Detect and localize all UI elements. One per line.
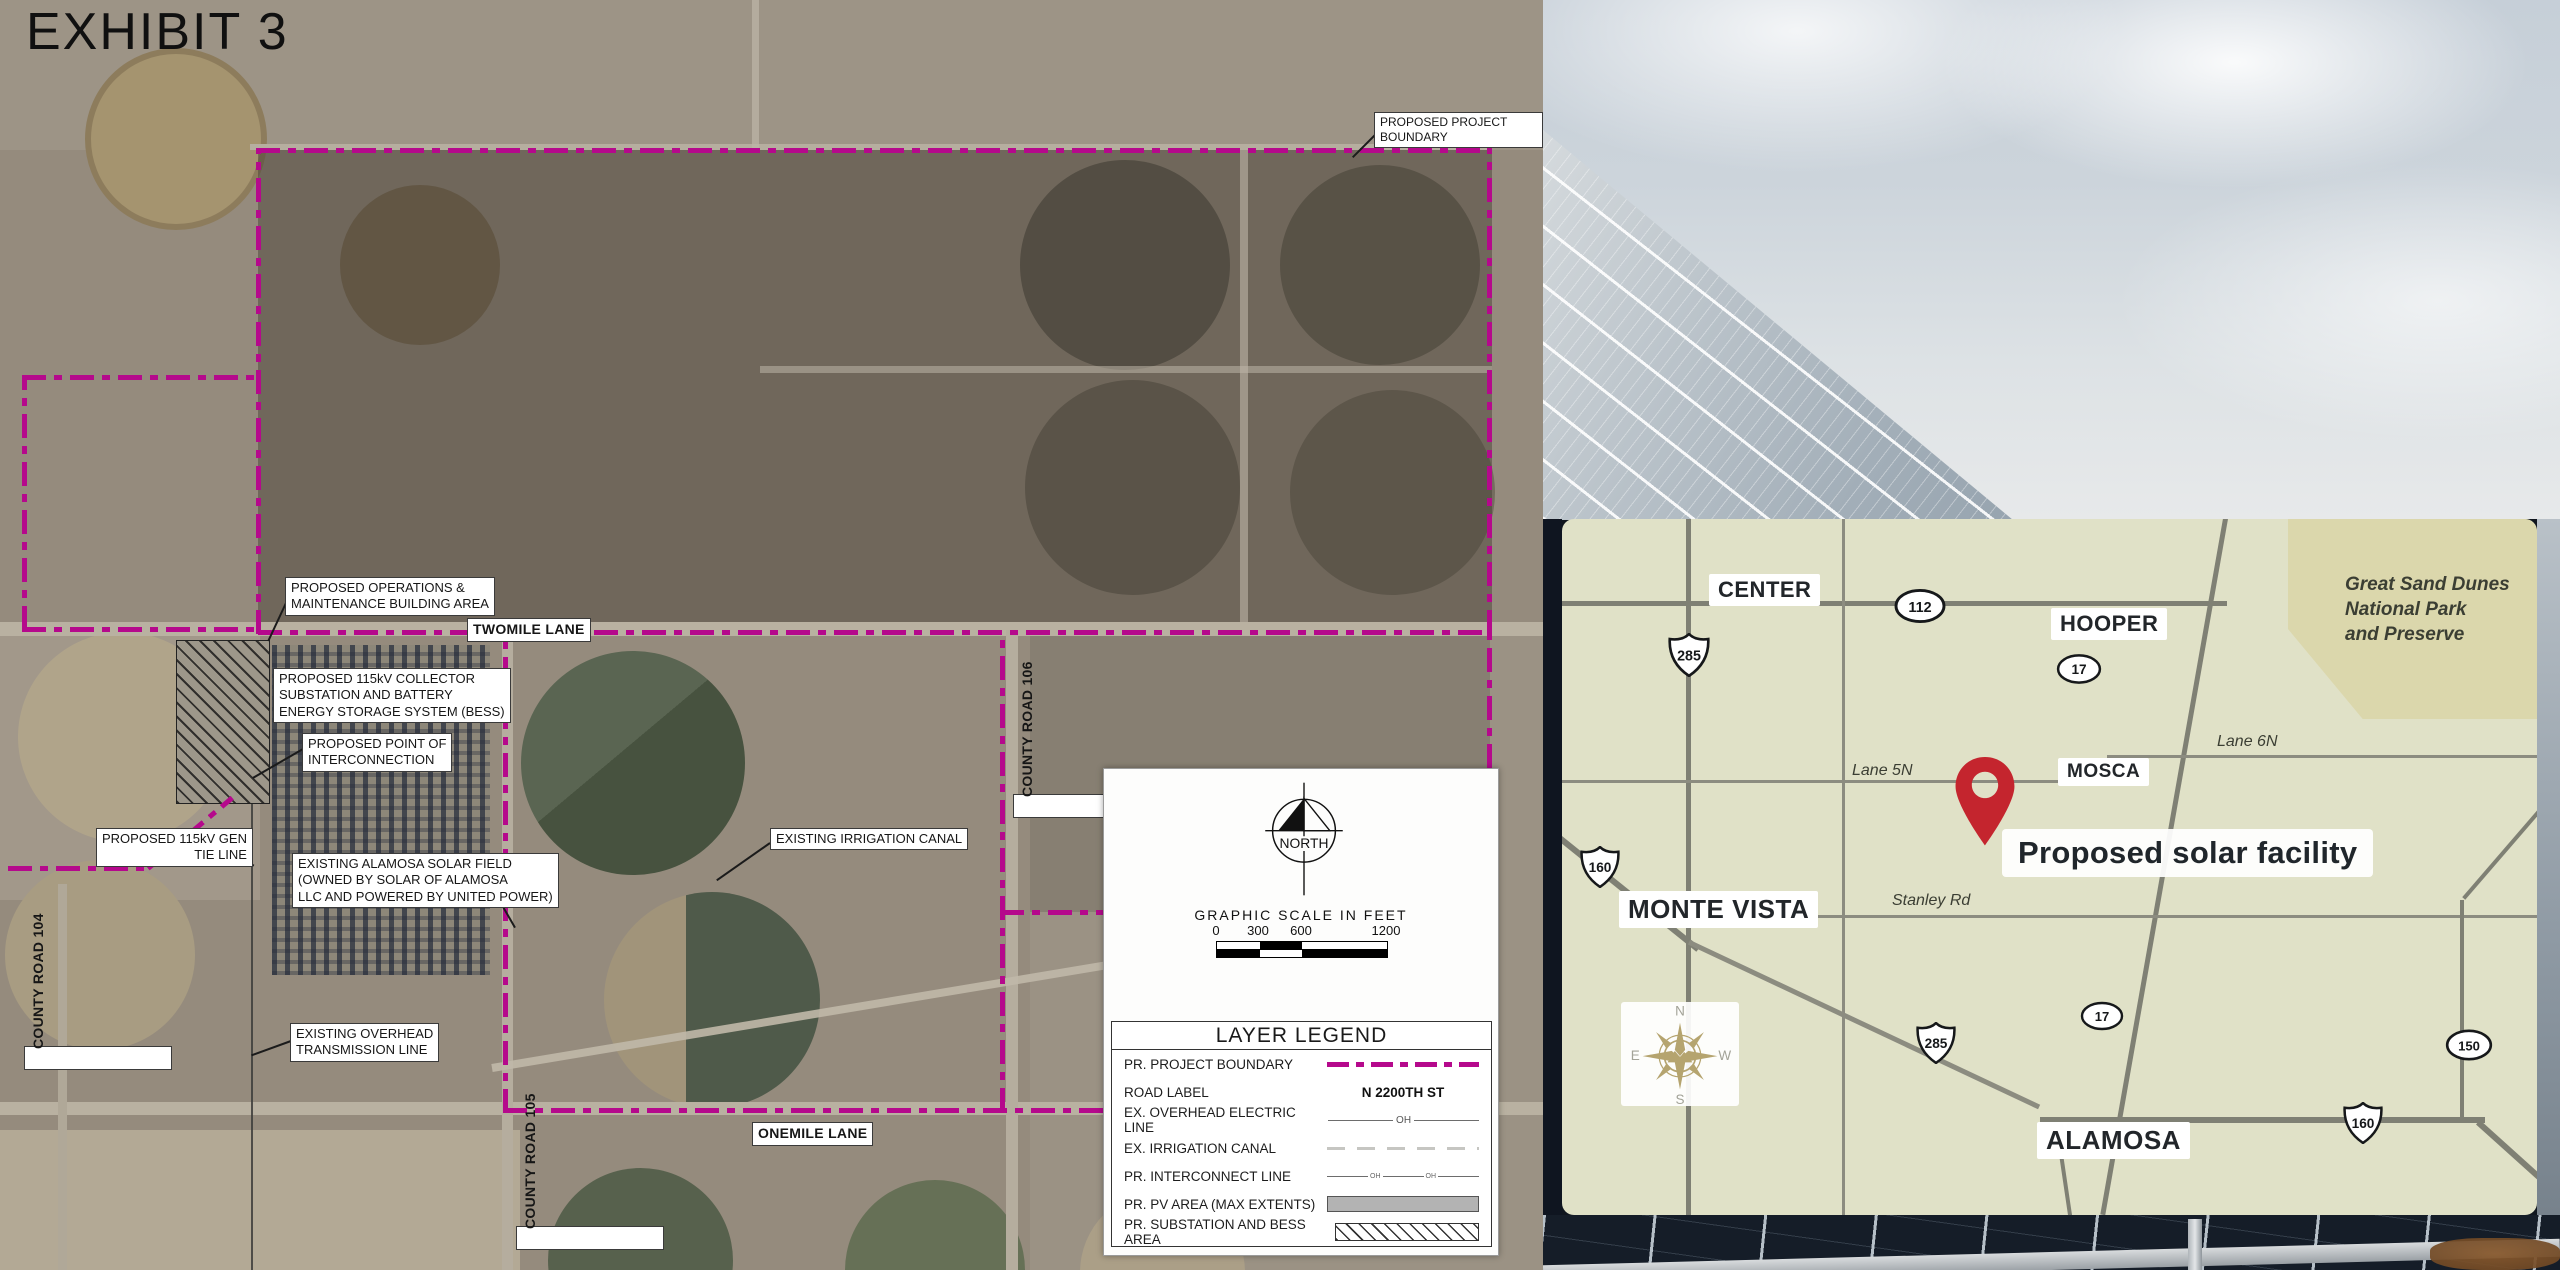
shield-number: 150: [2458, 1038, 2480, 1053]
road-label-cr105: COUNTY ROAD 105: [516, 1226, 664, 1250]
road-label-cr104: COUNTY ROAD 104: [24, 1046, 172, 1070]
oh-tag: OH: [1393, 1115, 1414, 1126]
road-label-twomile: TWOMILE LANE: [467, 618, 591, 642]
county-road-106: [1006, 630, 1018, 1270]
shield-number: 17: [2095, 1009, 2109, 1024]
callout-canal: EXISTING IRRIGATION CANAL: [770, 828, 968, 850]
legend-row: EX. IRRIGATION CANAL: [1112, 1134, 1491, 1162]
route-17-shield: 17: [2056, 651, 2102, 687]
legend-row: PR. PV AREA (MAX EXTENTS): [1112, 1190, 1491, 1218]
legend-label: PR. PROJECT BOUNDARY: [1124, 1057, 1293, 1072]
layer-legend: LAYER LEGEND PR. PROJECT BOUNDARY ROAD L…: [1111, 1021, 1492, 1247]
route-150-shield: 150: [2445, 1027, 2493, 1063]
boundary-segment: [22, 375, 258, 380]
road-top-vertical: [752, 0, 759, 150]
county-road-104: [58, 884, 67, 1270]
exhibit-3-canvas: EXHIBIT 3 PROPOSED PROJECT BOUNDARY PROP…: [0, 0, 2560, 1270]
road-lane6n: [2107, 755, 2537, 758]
boundary-segment: [22, 627, 258, 632]
compass-rose-icon: N S E W: [1621, 1002, 1739, 1106]
panel-strip-right: [2537, 519, 2560, 1215]
location-map: Great Sand Dunes National Park and Prese…: [1562, 519, 2537, 1215]
crop-circle: [604, 892, 820, 1108]
road-name-lane6n: Lane 6N: [2217, 733, 2278, 751]
panel-post: [2188, 1219, 2202, 1270]
legend-label: EX. OVERHEAD ELECTRIC LINE: [1124, 1105, 1328, 1135]
substation-swatch: [1335, 1223, 1479, 1241]
scale-tick: 300: [1247, 923, 1269, 938]
town-monte-vista: MONTE VISTA: [1619, 891, 1818, 928]
aerial-map: EXHIBIT 3 PROPOSED PROJECT BOUNDARY PROP…: [0, 0, 1543, 1270]
legend-row: PR. INTERCONNECT LINE OH OH: [1112, 1162, 1491, 1190]
crop-circle: [845, 1180, 1025, 1270]
road-lane5n: [1562, 780, 2110, 783]
road-minor-vertical: [1842, 519, 1845, 1215]
crop-circle: [548, 1168, 733, 1270]
layer-legend-title: LAYER LEGEND: [1112, 1022, 1491, 1050]
boundary-segment: [1000, 634, 1005, 1112]
leader-line: [251, 1040, 291, 1056]
shield-number: 112: [1908, 600, 1931, 616]
scale-ticks: 0 300 600 1200: [1216, 923, 1386, 937]
us-285-shield: 285: [1665, 633, 1713, 677]
us-160-shield: 160: [1577, 846, 1623, 888]
compass-w: W: [1718, 1048, 1731, 1063]
town-hooper: HOOPER: [2051, 608, 2167, 640]
road-285-southeast: [1688, 940, 2040, 1109]
crop-circle: [85, 48, 267, 230]
legend-panel: NORTH GRAPHIC SCALE IN FEET 0 300 600 12…: [1103, 768, 1499, 1256]
road-label-cr105-text: COUNTY ROAD 105: [522, 1093, 540, 1229]
pv-area-swatch: [1327, 1196, 1479, 1212]
compass-s: S: [1675, 1092, 1684, 1106]
road-name-stanley: Stanley Rd: [1892, 892, 1970, 910]
road-160-curve: [2476, 1120, 2537, 1185]
ground-patch: [2430, 1238, 2560, 1270]
crop-circle: [521, 651, 745, 875]
boundary-segment: [22, 375, 27, 630]
callout-collector: PROPOSED 115kV COLLECTOR SUBSTATION AND …: [273, 668, 511, 723]
road-150: [2460, 900, 2464, 1122]
compass-n: N: [1675, 1004, 1685, 1019]
north-arrow-icon: NORTH: [1252, 779, 1356, 899]
interconnect-swatch: OH OH: [1327, 1173, 1479, 1180]
legend-row: ROAD LABEL N 2200TH ST: [1112, 1078, 1491, 1106]
shield-number: 285: [1677, 649, 1701, 665]
legend-label: EX. IRRIGATION CANAL: [1124, 1141, 1276, 1156]
scale-tick: 0: [1212, 923, 1219, 938]
road-label-onemile: ONEMILE LANE: [752, 1122, 873, 1146]
scale-bar: [1216, 941, 1388, 958]
overhead-line-swatch: OH: [1328, 1115, 1479, 1126]
boundary-segment: [256, 148, 1492, 153]
callout-gen-tie: PROPOSED 115kV GEN TIE LINE: [96, 828, 253, 867]
gen-tie-line: [8, 866, 148, 871]
us-160-shield-east: 160: [2340, 1102, 2386, 1144]
canal-swatch: [1327, 1147, 1479, 1150]
photo-panel: Great Sand Dunes National Park and Prese…: [1543, 0, 2560, 1270]
road-inner-vertical: [1240, 150, 1248, 634]
legend-label: PR. PV AREA (MAX EXTENTS): [1124, 1197, 1315, 1212]
callout-interconnection: PROPOSED POINT OF INTERCONNECTION: [302, 733, 452, 772]
road-150-north: [2462, 787, 2537, 899]
callout-operations: PROPOSED OPERATIONS & MAINTENANCE BUILDI…: [285, 577, 495, 616]
route-17-shield-south: 17: [2080, 999, 2124, 1033]
road-stanley: [1808, 915, 2537, 918]
park-label: Great Sand Dunes National Park and Prese…: [2345, 572, 2510, 647]
north-label: NORTH: [1280, 835, 1329, 851]
legend-label: PR. INTERCONNECT LINE: [1124, 1169, 1291, 1184]
boundary-segment: [1487, 148, 1492, 634]
shield-number: 285: [1925, 1036, 1948, 1051]
shield-number: 160: [1589, 860, 1612, 875]
town-mosca: MOSCA: [2058, 758, 2149, 786]
road-label-cr104-text: COUNTY ROAD 104: [30, 913, 48, 1049]
road-inner-horizontal: [760, 366, 1492, 373]
road-285-north: [1686, 519, 1691, 1215]
terrain-patch: [0, 1130, 520, 1270]
legend-label: PR. SUBSTATION AND BESS AREA: [1124, 1217, 1335, 1247]
town-center: CENTER: [1709, 574, 1820, 606]
callout-transmission: EXISTING OVERHEAD TRANSMISSION LINE: [290, 1023, 439, 1062]
panel-strip-left: [1543, 519, 1562, 1215]
boundary-swatch: [1327, 1062, 1479, 1067]
scale-tick: 600: [1290, 923, 1312, 938]
facility-label: Proposed solar facility: [2002, 829, 2373, 877]
road-name-lane5n: Lane 5N: [1852, 762, 1913, 780]
scale-title: GRAPHIC SCALE IN FEET: [1104, 907, 1498, 923]
legend-row: PR. SUBSTATION AND BESS AREA: [1112, 1218, 1491, 1246]
route-112-shield: 112: [1893, 588, 1947, 624]
oh-tag: OH: [1424, 1173, 1439, 1180]
substation-bess-hatch: [176, 640, 270, 804]
legend-row: PR. PROJECT BOUNDARY: [1112, 1050, 1491, 1078]
legend-label: ROAD LABEL: [1124, 1085, 1209, 1100]
oh-tag: OH: [1368, 1173, 1383, 1180]
leader-line: [716, 842, 770, 881]
transmission-line: [251, 798, 253, 1270]
town-alamosa: ALAMOSA: [2037, 1122, 2190, 1159]
callout-alamosa-field: EXISTING ALAMOSA SOLAR FIELD (OWNED BY S…: [292, 853, 559, 908]
road-label-sample: N 2200TH ST: [1327, 1085, 1479, 1100]
shield-number: 17: [2071, 662, 2086, 677]
compass-card: N S E W: [1621, 1002, 1739, 1106]
shield-number: 160: [2352, 1116, 2375, 1131]
project-area-overlay: [258, 150, 1492, 634]
boundary-segment: [258, 630, 1490, 635]
boundary-segment: [256, 148, 261, 634]
compass-e: E: [1631, 1048, 1640, 1063]
us-285-shield-south: 285: [1913, 1022, 1959, 1064]
callout-project-boundary: PROPOSED PROJECT BOUNDARY: [1374, 112, 1543, 148]
page-title: EXHIBIT 3: [26, 2, 289, 62]
road-label-cr106-text: COUNTY ROAD 106: [1019, 661, 1037, 797]
legend-row: EX. OVERHEAD ELECTRIC LINE OH: [1112, 1106, 1491, 1134]
scale-tick: 1200: [1372, 923, 1401, 938]
